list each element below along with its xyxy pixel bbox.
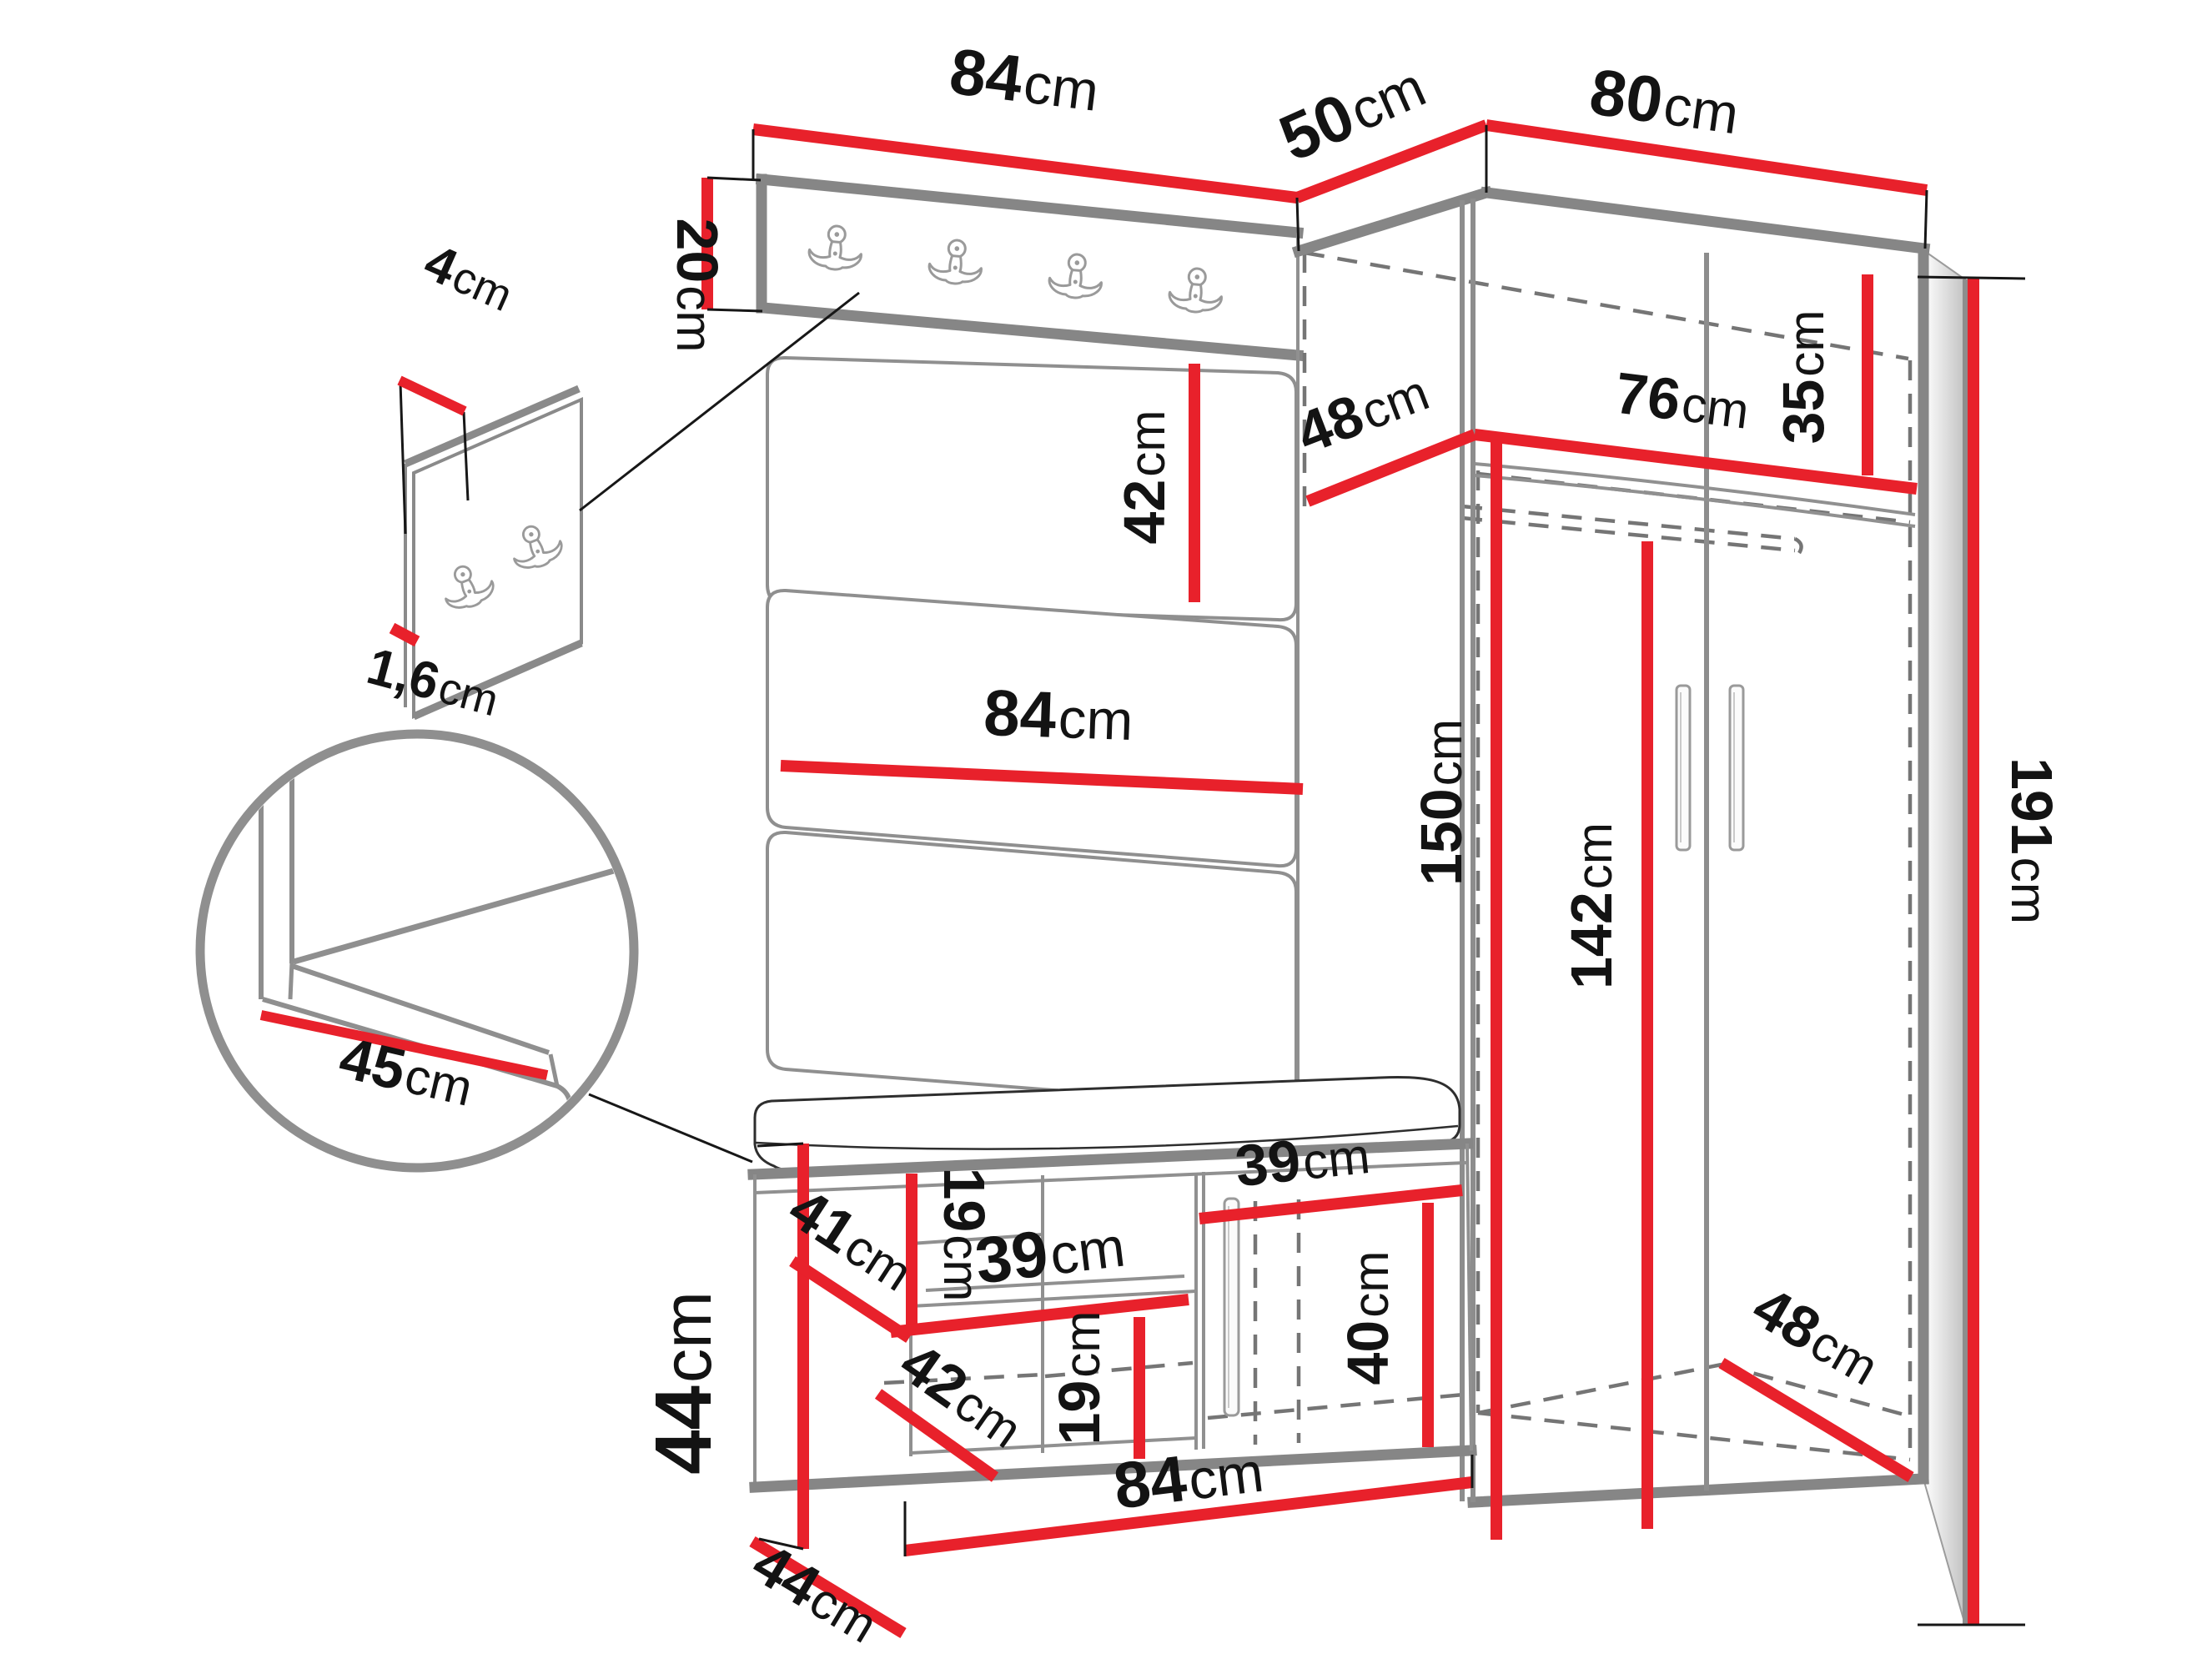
ext-line [400,382,405,534]
wardrobe-shelf-edge [1475,464,1915,515]
detail-circle [200,734,752,1168]
dim-cushion-42: 42cm [1112,410,1177,544]
wardrobe-top-edge [1486,193,1924,249]
rail-bottom-edge [763,308,1298,355]
dim-inner-76: 76cm [1611,360,1752,441]
wardrobe-bottom-edge [1473,1479,1923,1502]
dim-line-bottom-84 [905,1482,1472,1551]
wall-panel-unit [762,179,1298,1124]
dim-height-150: 150cm [1409,719,1474,886]
cushion-panel-1 [767,358,1296,620]
dim-rail-20: 20cm [665,218,730,352]
coat-hook-icon [1048,252,1103,299]
dim-bench-19b: 19cm [1047,1310,1112,1445]
door-handle [1677,686,1690,850]
dim-shelf-35: 35cm [1771,309,1836,444]
hallway-set-drawing: 84cm 50cm 80cm 20cm 4cm 1,6cm 42cm 84cm … [0,0,2212,1659]
wardrobe-side-face [1923,250,1965,1625]
coat-hook-icon [807,224,863,271]
dim-height-191: 191cm [1999,757,2064,924]
dim-height-142: 142cm [1559,822,1624,989]
door-handle [1730,686,1743,850]
dim-depth-44b: 44cm [742,1531,890,1656]
coat-hook-icon [928,238,983,285]
dim-door-40: 40cm [1335,1250,1400,1385]
dim-line-4cm [400,380,465,411]
cushion-panel-3 [767,832,1296,1108]
dim-line-48-bottom [1722,1363,1911,1477]
furniture-dimension-diagram: 84cm 50cm 80cm 20cm 4cm 1,6cm 42cm 84cm … [0,0,2212,1659]
bench-door-handle [1224,1199,1239,1415]
dim-top-80: 80cm [1586,54,1744,148]
dim-depth-48b: 48cm [1742,1274,1892,1397]
coat-hook-icon [1168,266,1224,314]
dim-bench-44: 44cm [639,1291,728,1475]
callout-line-detail [589,1094,752,1162]
dim-top-84: 84cm [946,34,1103,125]
dim-panel-4: 4cm [416,234,522,323]
dim-corner-48: 48cm [1288,357,1436,466]
corner-top-edge [1299,193,1486,251]
